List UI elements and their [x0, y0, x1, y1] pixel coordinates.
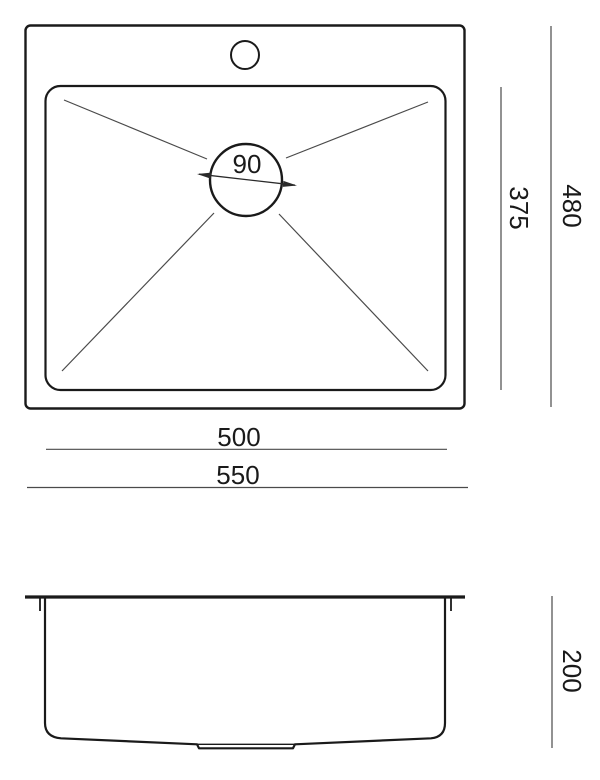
corner-diagonal-top-right	[286, 102, 428, 158]
arrowhead-left-icon	[197, 173, 211, 179]
bowl-width-label: 375	[504, 186, 534, 229]
overall-length-label: 550	[216, 460, 259, 490]
top-view-dimensions: 375 480 500 550	[27, 26, 587, 490]
sink-dimension-diagram: 90 375 480 500 550	[0, 0, 600, 780]
corner-diagonal-bottom-left	[62, 213, 214, 371]
bowl-length-label: 500	[217, 422, 260, 452]
overall-height-label: 200	[557, 649, 587, 692]
basin-profile	[45, 599, 445, 749]
front-view-dimensions: 200	[552, 596, 587, 748]
corner-diagonal-bottom-right	[279, 214, 428, 371]
bowl-outline	[46, 86, 446, 390]
front-view	[25, 597, 465, 748]
faucet-hole	[231, 41, 259, 69]
top-view: 90	[26, 26, 465, 409]
drain-diameter-label: 90	[233, 149, 262, 179]
drawing-canvas: 90 375 480 500 550	[0, 0, 600, 780]
corner-diagonal-top-left	[64, 100, 207, 159]
arrowhead-right-icon	[283, 181, 297, 187]
overall-width-label: 480	[557, 184, 587, 227]
